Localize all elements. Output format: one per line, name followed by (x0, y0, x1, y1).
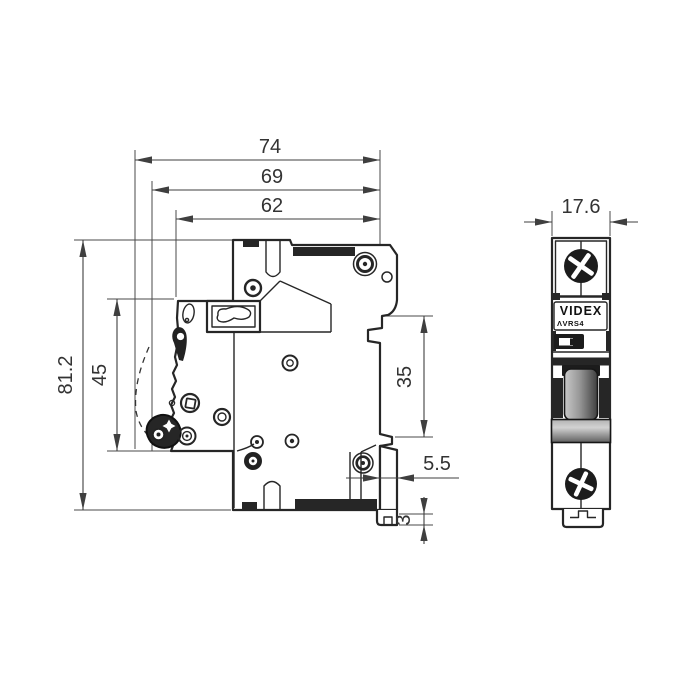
toggle-base (552, 420, 611, 443)
bottom-notch (242, 502, 257, 510)
model-label: ΛVRS4 (557, 319, 584, 328)
dimension-17.6: 17.6 (524, 196, 638, 236)
toggle-bracket (553, 378, 563, 418)
toggle-bracket (599, 378, 609, 418)
rivet (353, 453, 373, 473)
toggle-handle (565, 369, 598, 420)
side-view: 74 69 62 81.2 45 (55, 136, 459, 544)
rivet (354, 253, 377, 276)
top-chamfer-band (293, 247, 355, 256)
front-view: 17.6 VIDEX ΛVRS4 (524, 196, 638, 527)
dimension-69: 69 (152, 166, 380, 194)
dimension-81.2: 81.2 (55, 240, 87, 510)
technical-drawing-page: 74 69 62 81.2 45 (0, 0, 700, 700)
indicator-window (554, 334, 584, 349)
dim-35-label: 35 (394, 366, 416, 388)
rivet (244, 452, 262, 470)
dim-17.6-label: 17.6 (562, 196, 601, 218)
dim-5.5-label: 5.5 (423, 453, 451, 475)
top-notch (243, 240, 259, 247)
label-side-bar (606, 331, 610, 351)
toggle-lever-off (147, 415, 181, 448)
dimension-62: 62 (176, 195, 380, 223)
dim-81.2-label: 81.2 (55, 356, 77, 395)
dim-74-label: 74 (259, 136, 281, 158)
toggle-window (207, 301, 260, 332)
dim-45-label: 45 (89, 364, 111, 386)
bottom-chamfer-band (295, 499, 377, 510)
circuit-breaker-dimension-drawing: 74 69 62 81.2 45 (0, 0, 700, 700)
dimension-74: 74 (135, 136, 380, 164)
dimension-3: 3 (393, 497, 428, 544)
dimension-45: 45 (89, 299, 121, 451)
dimension-35: 35 (394, 316, 428, 437)
dim-3-label: 3 (393, 514, 415, 525)
dim-69-label: 69 (261, 166, 283, 188)
dim-62-label: 62 (261, 195, 283, 217)
mounting-foot-front (563, 509, 603, 527)
videx-logo: VIDEX (560, 304, 603, 318)
